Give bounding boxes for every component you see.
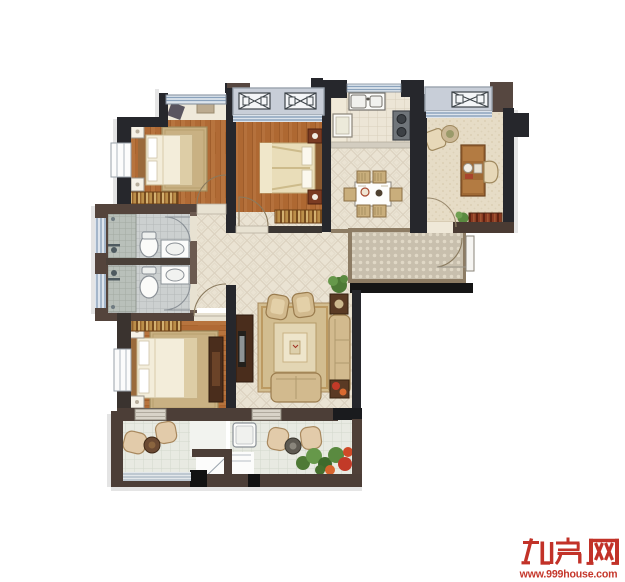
svg-text:www.999house.com: www.999house.com: [519, 569, 618, 581]
